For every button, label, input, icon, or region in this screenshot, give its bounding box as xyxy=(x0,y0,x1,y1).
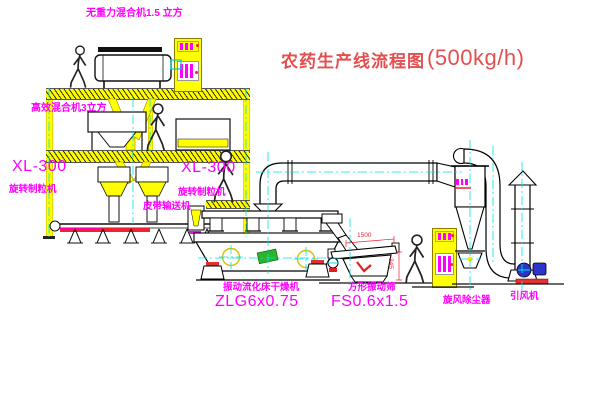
cabinet-bar xyxy=(180,64,183,78)
label-granulator-center-model: XL-300 xyxy=(181,160,236,176)
label-high-efficiency-mixer: 高效混合机3立方 xyxy=(31,104,107,114)
label-screen-name: 方形振动筛 xyxy=(348,283,396,293)
cabinet-bar xyxy=(443,256,446,272)
control-cabinet-top xyxy=(174,38,202,92)
label-cyclone: 旋风除尘器 xyxy=(443,296,491,306)
control-cabinet-cyclone xyxy=(432,228,457,288)
cabinet-bar xyxy=(185,43,188,50)
label-granulator-center-name: 旋转制粒机 xyxy=(178,188,226,198)
cabinet-bar xyxy=(438,233,441,240)
belt-conveyor xyxy=(50,221,218,243)
fluid-bed-dryer xyxy=(188,206,358,280)
indicator-light xyxy=(451,234,454,237)
high-efficiency-mixer xyxy=(88,99,230,150)
cabinet-bar xyxy=(443,233,446,240)
person-top-floor xyxy=(71,46,86,87)
column-base-left xyxy=(43,236,55,239)
exhaust-stack xyxy=(508,171,537,281)
title-text: 农药生产线流程图 xyxy=(281,47,425,72)
cabinet-bar xyxy=(190,64,193,78)
label-screen-model: FS0.6x1.5 xyxy=(331,294,408,310)
title-capacity: (500kg/h) xyxy=(427,45,524,71)
cabinet-bar xyxy=(190,43,193,50)
column-base-right xyxy=(240,236,252,239)
dimension-screen-height: 345 xyxy=(387,258,394,269)
label-gravity-free-mixer: 无重力混合机1.5 立方 xyxy=(86,9,183,19)
mezzanine-slab xyxy=(206,200,250,209)
label-belt-conveyor: 皮带输送机 xyxy=(143,202,191,212)
indicator-light xyxy=(450,263,453,266)
indicator-light xyxy=(195,71,198,74)
diagram-title: 农药生产线流程图 (500kg/h) xyxy=(281,46,524,72)
cabinet-bar xyxy=(185,64,188,78)
exhaust-duct xyxy=(254,160,437,212)
induced-draft-fan xyxy=(516,263,548,284)
building-column-mid xyxy=(148,98,153,151)
cabinet-bar xyxy=(438,256,441,272)
cabinet-bar xyxy=(180,43,183,50)
floor-slab-3f xyxy=(46,88,250,100)
flow-diagram-canvas: 无重力混合机1.5 立方 农药生产线流程图 (500kg/h) 高效混合机3立方… xyxy=(0,0,600,403)
label-dryer-name: 振动流化床干燥机 xyxy=(223,283,299,293)
label-dryer-model: ZLG6x0.75 xyxy=(215,294,299,310)
label-granulator-left-name: 旋转制粒机 xyxy=(9,185,57,195)
granulators xyxy=(98,162,168,222)
label-fan: 引风机 xyxy=(510,292,539,302)
indicator-light xyxy=(196,44,199,47)
person-ground xyxy=(406,235,423,283)
gravity-free-mixer xyxy=(95,47,181,88)
cyclone-tag xyxy=(456,179,468,185)
dryer-nameplate xyxy=(257,249,278,264)
label-granulator-left-model: XL-300 xyxy=(12,159,67,175)
dimension-screen-length: 1500 xyxy=(357,233,371,240)
